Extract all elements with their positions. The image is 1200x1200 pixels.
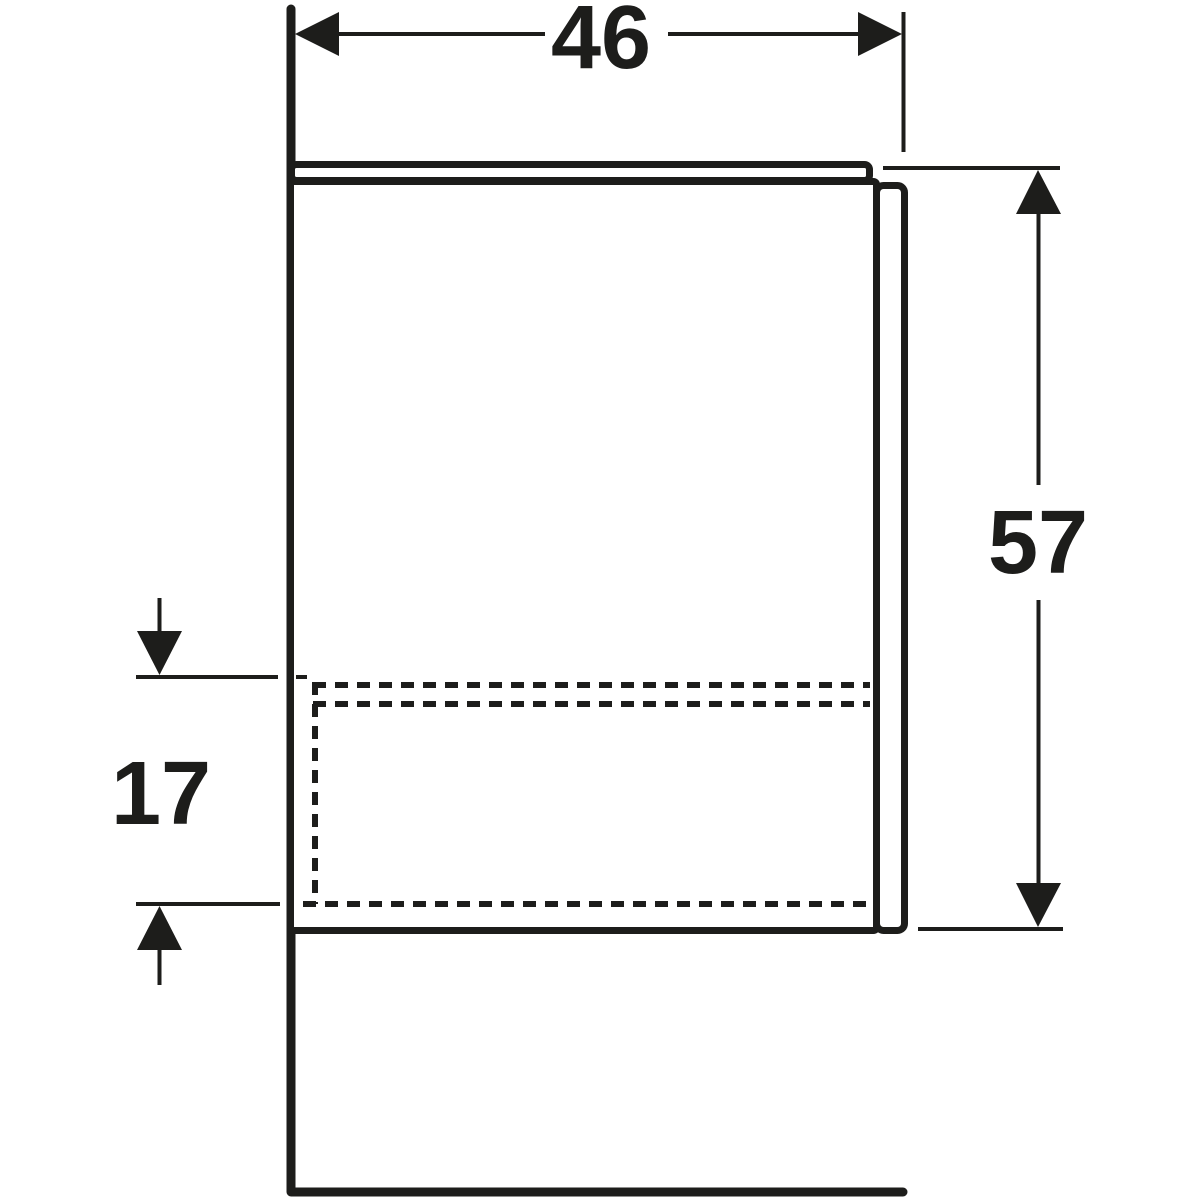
door-front-panel [877,186,905,931]
drawer-dimension: 17 [111,598,307,985]
arrow-right-icon [858,12,902,56]
cabinet-body [291,182,877,931]
height-dimension: 57 [883,168,1088,929]
arrow-left-icon [295,12,339,56]
cabinet-top-panel [292,165,870,181]
width-dimension-label: 46 [551,0,651,88]
height-dimension-label: 57 [988,493,1088,593]
width-dimension: 46 [295,0,904,152]
arrow-down-icon [1016,883,1061,927]
arrow-down-icon [137,631,182,675]
arrow-up-icon [137,906,182,950]
drawer-dimension-label: 17 [111,744,211,844]
arrow-up-icon [1016,170,1061,214]
technical-drawing-page: 46 57 17 [0,0,1200,1200]
cabinet-side-view-drawing: 46 57 17 [0,0,1200,1200]
